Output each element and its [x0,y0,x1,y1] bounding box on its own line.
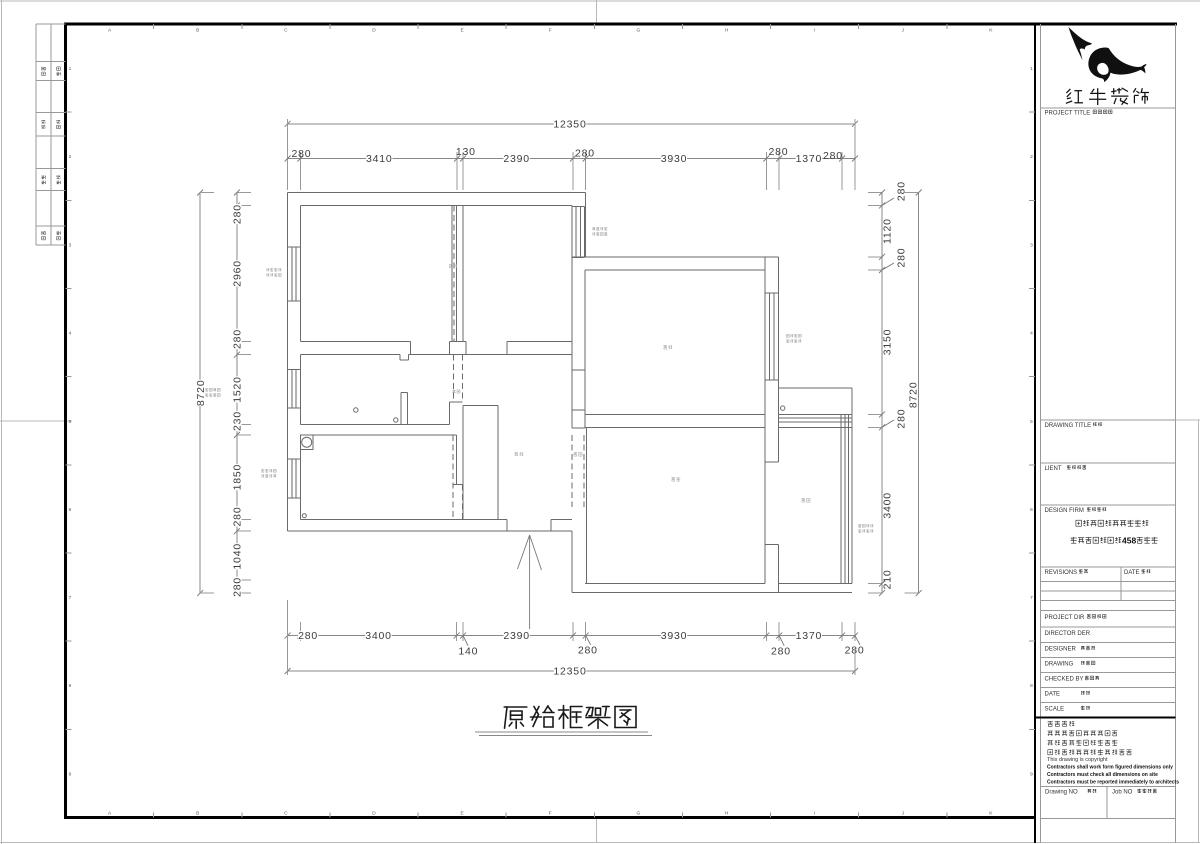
svg-text:3: 3 [69,242,72,248]
svg-text:280: 280 [231,507,243,527]
svg-text:280: 280 [768,146,788,158]
svg-text:3400: 3400 [365,630,392,642]
svg-text:2: 2 [1030,154,1033,160]
svg-text:210: 210 [882,569,894,589]
svg-text:DRAWING TITLE: DRAWING TITLE [1045,423,1092,429]
svg-text:PROJECT TITLE: PROJECT TITLE [1045,111,1091,117]
svg-text:1520: 1520 [232,376,244,403]
svg-text:C: C [284,811,288,817]
svg-text:E: E [460,811,463,817]
svg-text:Contractors shall work form fi: Contractors shall work form figured dime… [1047,765,1173,771]
svg-text:8720: 8720 [907,382,919,409]
svg-text:CHECKED BY: CHECKED BY [1045,677,1084,683]
svg-text:DESIGN FIRM: DESIGN FIRM [1045,508,1084,514]
svg-text:G: G [637,28,641,34]
svg-text:280: 280 [823,150,843,162]
svg-text:2: 2 [69,154,72,160]
svg-text:DESIGNER: DESIGNER [1045,647,1077,653]
svg-text:3930: 3930 [661,153,688,165]
svg-text:3410: 3410 [366,153,393,165]
svg-text:8: 8 [1030,683,1033,689]
svg-text:This drawing is copyright: This drawing is copyright [1047,757,1108,763]
svg-text:280: 280 [771,645,791,657]
svg-text:280: 280 [232,329,244,349]
svg-text:F: F [549,811,552,817]
svg-text:H: H [725,811,729,817]
svg-text:DATE: DATE [1045,692,1061,698]
svg-text:4: 4 [69,331,72,337]
svg-text:1370: 1370 [796,630,823,642]
svg-text:12350: 12350 [553,118,586,130]
svg-text:DATE: DATE [1124,570,1140,576]
svg-text:DRAWING: DRAWING [1045,662,1074,668]
svg-text:2960: 2960 [232,260,244,287]
svg-text:Contractors must check all dim: Contractors must check all dimensions on… [1047,772,1158,778]
svg-text:280: 280 [575,147,595,159]
svg-text:280: 280 [896,409,908,429]
svg-text:2390: 2390 [503,153,530,165]
svg-text:280: 280 [292,148,312,160]
svg-text:3150: 3150 [882,329,894,356]
svg-text:G: G [637,811,641,817]
svg-text:3930: 3930 [661,630,688,642]
svg-text:Contractors must be reported i: Contractors must be reported immediately… [1047,780,1179,786]
svg-text:7: 7 [1030,595,1033,601]
svg-text:8720: 8720 [195,380,207,407]
svg-text:I: I [814,28,815,34]
svg-text:C: C [284,28,288,34]
svg-text:5: 5 [69,419,72,425]
svg-text:280: 280 [896,248,908,268]
svg-text:PROJECT DIR: PROJECT DIR [1045,615,1086,621]
svg-text:280: 280 [231,577,243,597]
svg-text:6: 6 [1030,507,1033,513]
svg-text:4: 4 [1030,331,1033,337]
svg-text:Job NO: Job NO [1112,789,1133,795]
svg-text:7: 7 [69,595,72,601]
svg-text:1120: 1120 [882,218,894,244]
svg-text:1370: 1370 [796,153,823,165]
svg-text:3: 3 [1030,242,1033,248]
svg-text:B: B [196,811,199,817]
svg-text:E: E [460,28,463,34]
svg-text:D: D [372,28,376,34]
svg-text:F: F [549,28,552,34]
svg-text:130: 130 [456,146,476,158]
svg-text:5: 5 [1030,419,1033,425]
svg-text:140: 140 [458,645,478,657]
svg-text:6: 6 [69,507,72,513]
svg-text:12350: 12350 [553,666,586,678]
svg-text:B: B [196,28,199,34]
svg-text:458: 458 [1122,536,1136,546]
svg-text:DIRECTOR DER: DIRECTOR DER [1045,631,1091,637]
svg-text:1850: 1850 [232,464,244,491]
svg-text:280: 280 [231,204,243,224]
svg-text:8: 8 [69,683,72,689]
svg-text:280: 280 [896,181,908,201]
svg-text:280: 280 [578,644,598,656]
svg-text:280: 280 [298,630,318,642]
svg-text:REVISIONS: REVISIONS [1045,570,1078,576]
svg-text:LIENT: LIENT [1045,466,1062,472]
svg-text:1: 1 [1030,66,1033,72]
svg-text:D: D [372,811,376,817]
svg-text:H: H [725,28,729,34]
svg-text:3400: 3400 [882,492,894,519]
svg-text:1040: 1040 [232,543,244,570]
svg-text:230: 230 [232,411,244,431]
svg-text:I: I [814,811,815,817]
svg-text:2390: 2390 [503,630,530,642]
svg-text:9: 9 [1030,771,1033,777]
svg-text:9: 9 [69,771,72,777]
svg-text:Drawing NO: Drawing NO [1045,789,1078,795]
svg-text:SCALE: SCALE [1045,707,1065,713]
svg-text:1: 1 [69,66,72,72]
